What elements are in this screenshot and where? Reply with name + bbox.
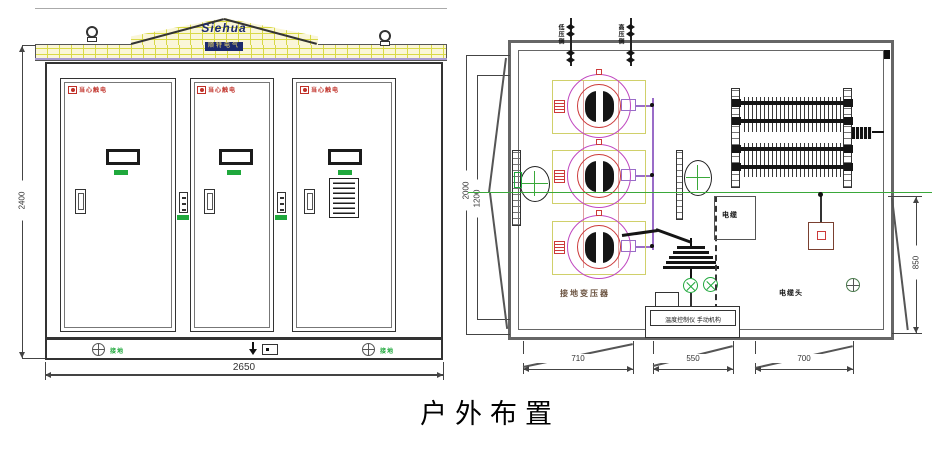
- lifting-ring-icon: [379, 30, 391, 42]
- dim-bottom-2: 550: [653, 354, 733, 363]
- dim-width-value: 2650: [214, 362, 274, 373]
- terminal-box: [808, 222, 834, 250]
- bushing-icon: [626, 24, 635, 30]
- transformer-phase-3: [552, 213, 648, 283]
- nameplate: [329, 178, 359, 218]
- radiator-valve: [852, 127, 872, 139]
- warning-label: 当心触电: [197, 85, 236, 94]
- lifting-ring-icon: [86, 26, 98, 38]
- logo-subtext: 顺特电气: [205, 42, 243, 51]
- hinge-lock: [277, 192, 286, 213]
- door-swing-line: [489, 193, 508, 329]
- ground-label-left: 接地: [110, 346, 124, 355]
- door-window: [328, 149, 362, 165]
- dim-left-outer-value: 2000: [462, 171, 471, 211]
- door-handle: [304, 189, 315, 214]
- transformer-phase-2: [552, 142, 648, 212]
- ground-symbol-icon: [92, 343, 105, 356]
- fan-icon: [684, 160, 712, 196]
- top-border-line: [35, 8, 447, 9]
- door-swing-line: [488, 58, 507, 193]
- window-sticker: [338, 170, 352, 175]
- door-window: [219, 149, 253, 165]
- caption: 户外布置: [372, 392, 608, 431]
- hv-side-label: 高压侧: [616, 24, 625, 45]
- dim-height-value: 2400: [18, 181, 27, 221]
- window-sticker: [114, 170, 128, 175]
- brand-logo: Siehua 顺特电气: [180, 22, 268, 52]
- warning-icon: [197, 86, 206, 94]
- transformer-phase-1: [552, 72, 648, 142]
- fan-rail: [676, 150, 683, 220]
- hinge-sticker: [177, 215, 189, 220]
- control-label: 温度控制仪 手动机构: [651, 315, 735, 324]
- transformer-label: 接地变压器: [560, 288, 610, 299]
- warning-icon: [300, 86, 309, 94]
- base-plate: [262, 344, 278, 355]
- drawing-sheet: Siehua 顺特电气 当心触电 当心触电: [0, 0, 941, 456]
- ground-symbol-icon: [846, 278, 860, 292]
- arrester-icon: [683, 278, 698, 293]
- centerline: [468, 192, 932, 193]
- bushing-icon: [566, 24, 575, 30]
- warning-label: 当心触电: [300, 85, 339, 94]
- eave-trim-line: [35, 58, 447, 60]
- cable-label: 电缆: [722, 210, 738, 220]
- hinge-sticker: [275, 215, 287, 220]
- cable-head-label: 电缆头: [779, 288, 803, 298]
- corner-mark: [884, 50, 890, 59]
- lv-side-label: 低压侧: [556, 24, 565, 45]
- dim-right-value: 850: [912, 246, 921, 280]
- door-3: 当心触电: [292, 78, 396, 332]
- warning-icon: [68, 86, 77, 94]
- door-2: 当心触电: [190, 78, 274, 332]
- warning-label: 当心触电: [68, 85, 107, 94]
- hinge-lock: [179, 192, 188, 213]
- bushing-icon: [626, 31, 635, 37]
- fan-icon: [520, 166, 550, 202]
- junction-box: [655, 292, 679, 307]
- door-window: [106, 149, 140, 165]
- door-handle: [204, 189, 215, 214]
- window-sticker: [227, 170, 241, 175]
- down-arrow-icon: [252, 342, 254, 349]
- logo-text: Siehua: [180, 22, 268, 34]
- dim-left-inner-value: 1200: [473, 180, 482, 218]
- ground-symbol-icon: [362, 343, 375, 356]
- ground-label-right: 接地: [380, 346, 394, 355]
- door-handle: [75, 189, 86, 214]
- bushing-icon: [566, 31, 575, 37]
- dim-bottom-1: 710: [523, 354, 633, 363]
- door-1: 当心触电: [60, 78, 176, 332]
- control-label-box: 温度控制仪 手动机构: [650, 310, 736, 326]
- dim-bottom-3: 700: [755, 354, 853, 363]
